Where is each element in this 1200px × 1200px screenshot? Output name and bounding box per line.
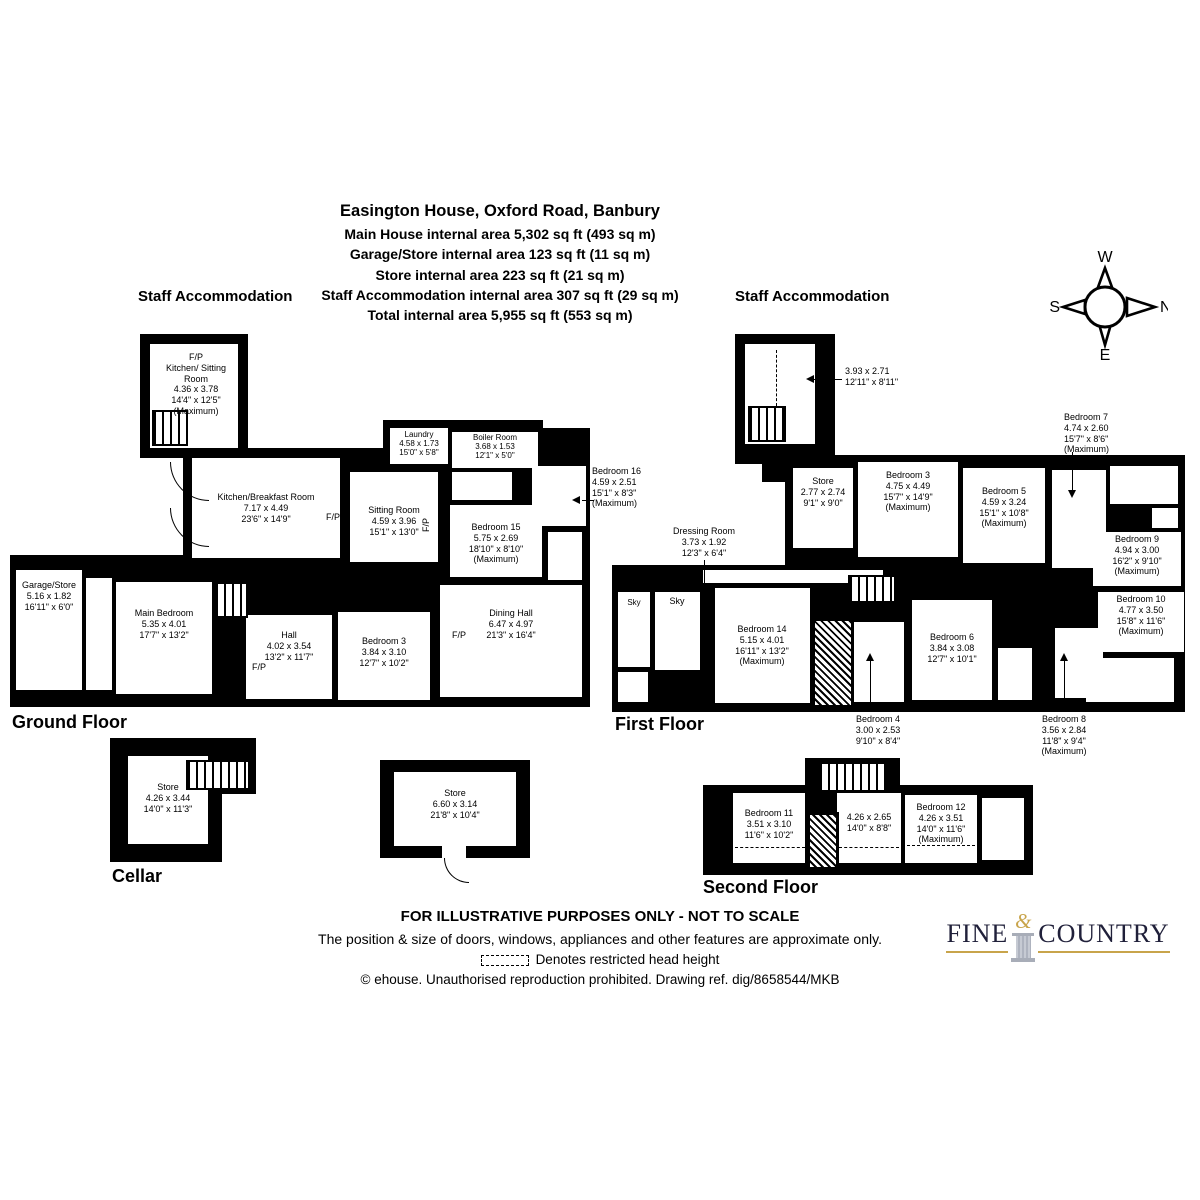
room-label-dressing-room: Dressing Room 3.73 x 1.92 12'3" x 6'4" — [673, 526, 735, 558]
room-label-bedroom-5: Bedroom 5 4.59 x 3.24 15'1" x 10'8" (Max… — [979, 486, 1028, 529]
compass-letter-s: S — [1049, 299, 1060, 316]
restricted-head-height-line — [735, 847, 805, 848]
room-label-laundry: Laundry 4.58 x 1.73 15'0" x 5'8" — [399, 430, 439, 458]
column-shaft-icon — [1016, 936, 1031, 958]
skylight-label: Sky — [627, 598, 640, 607]
arrow-head — [806, 375, 814, 383]
room-dining-hall — [440, 585, 582, 697]
footer-restricted-head-note: Denotes restricted head height — [150, 952, 1050, 967]
compass-letter-n: N — [1160, 299, 1168, 316]
skylight-label: Sky — [669, 596, 684, 607]
room-bathroom — [982, 798, 1024, 860]
door-swing — [170, 462, 209, 501]
arrow-line — [814, 379, 842, 380]
room-label-kitchen-sitting-room: F/P Kitchen/ Sitting Room 4.36 x 3.78 14… — [154, 352, 238, 417]
room-label-bedroom-4: Bedroom 4 3.00 x 2.53 9'10" x 8'4" — [856, 714, 901, 746]
logo-column: & — [1011, 911, 1035, 962]
arrow-head — [700, 592, 708, 600]
logo-ampersand: & — [1015, 911, 1031, 932]
room-bathroom — [1110, 466, 1178, 504]
logo-word-fine: FINE — [946, 921, 1008, 953]
compass-circle — [1085, 287, 1125, 327]
logo-word-country: COUNTRY — [1038, 921, 1169, 953]
arrow-head — [1068, 490, 1076, 498]
stairs-icon — [848, 575, 896, 603]
room-label-staff-right: 3.93 x 2.71 12'11" x 8'11" — [845, 366, 898, 388]
room-label-store-first: Store 2.77 x 2.74 9'1" x 9'0" — [801, 476, 846, 508]
arrow-head — [572, 496, 580, 504]
chimney-hatch — [807, 812, 839, 870]
area-line: Main House internal area 5,302 sq ft (49… — [250, 224, 750, 244]
arrow-line — [582, 500, 594, 501]
room-label-bedroom-12: Bedroom 12 4.26 x 3.51 14'0" x 11'6" (Ma… — [916, 802, 965, 845]
room-label-bedroom-16: Bedroom 16 4.59 x 2.51 15'1" x 8'3" (Max… — [592, 466, 641, 509]
section-title-staff-accommodation-right: Staff Accommodation — [735, 288, 895, 306]
area-line: Staff Accommodation internal area 307 sq… — [250, 285, 750, 305]
floor-title-first: First Floor — [615, 714, 704, 735]
stairs-icon — [818, 762, 886, 792]
column-base — [1011, 958, 1035, 962]
room-label-garage-store: Garage/Store 5.16 x 1.82 16'11" x 6'0" — [22, 580, 76, 612]
room-label-bedroom-6: Bedroom 6 3.84 x 3.08 12'7" x 10'1" — [927, 632, 976, 664]
floorplan-page: Easington House, Oxford Road, Banbury Ma… — [0, 0, 1200, 1200]
area-line: Store internal area 223 sq ft (21 sq m) — [250, 265, 750, 285]
room-label-bedroom-8: Bedroom 8 3.56 x 2.84 11'8" x 9'4" (Maxi… — [1042, 714, 1087, 757]
stairs-icon — [214, 582, 248, 618]
compass-rose: W N E S — [1048, 246, 1168, 366]
room-label-bedroom-7: Bedroom 7 4.74 x 2.60 15'7" x 8'6" (Maxi… — [1064, 412, 1109, 455]
room-label-cellar-store: Store 4.26 x 3.44 14'0" x 11'3" — [144, 782, 193, 814]
footer-copyright: © ehouse. Unauthorised reproduction proh… — [150, 972, 1050, 987]
floor-title-second: Second Floor — [703, 877, 818, 898]
room-label-bedroom-15: Bedroom 15 5.75 x 2.69 18'10" x 8'10" (M… — [469, 522, 523, 565]
room-label-hall: Hall 4.02 x 3.54 13'2" x 11'7" — [265, 630, 314, 662]
room-label-boiler: Boiler Room 3.68 x 1.53 12'1" x 5'0" — [473, 433, 517, 461]
area-line: Garage/Store internal area 123 sq ft (11… — [250, 244, 750, 264]
fireplace-label: F/P — [326, 512, 340, 522]
footer-disclaimer: FOR ILLUSTRATIVE PURPOSES ONLY - NOT TO … — [150, 908, 1050, 925]
room-label-landing-second: 4.26 x 2.65 14'0" x 8'8" — [847, 812, 892, 834]
room-label-kitchen-breakfast: Kitchen/Breakfast Room 7.17 x 4.49 23'6"… — [217, 492, 314, 524]
room-label-bedroom-3-first: Bedroom 3 4.75 x 4.49 15'7" x 14'9" (Max… — [883, 470, 932, 513]
room-bathroom — [1152, 508, 1178, 528]
room-bathroom — [1086, 658, 1174, 702]
stairs-icon — [186, 760, 250, 790]
door-swing — [444, 858, 469, 883]
arrow-line — [1072, 452, 1073, 492]
door-swing — [170, 508, 209, 547]
compass-letter-w: W — [1097, 249, 1113, 266]
compass-point-right — [1127, 298, 1155, 316]
restricted-head-height-symbol — [481, 955, 529, 966]
compass-point-left — [1063, 300, 1085, 314]
section-title-staff-accommodation-left: Staff Accommodation — [138, 288, 298, 306]
room-lobby — [86, 578, 112, 690]
fireplace-label: F/P — [421, 518, 431, 532]
room-label-main-bedroom: Main Bedroom 5.35 x 4.01 17'7" x 13'2" — [135, 608, 194, 640]
room-bathroom — [998, 648, 1032, 700]
arrow-head — [1060, 653, 1068, 661]
page-title: Easington House, Oxford Road, Banbury — [250, 202, 750, 221]
void-hatch — [812, 618, 854, 708]
floor-title-ground: Ground Floor — [12, 712, 127, 733]
arrow-head — [866, 653, 874, 661]
fine-and-country-logo: FINE & COUNTRY — [948, 921, 1168, 962]
footer-approximate-note: The position & size of doors, windows, a… — [150, 931, 1050, 947]
footer: FOR ILLUSTRATIVE PURPOSES ONLY - NOT TO … — [150, 908, 1050, 992]
restricted-head-height-line — [776, 350, 777, 406]
fireplace-label: F/P — [452, 630, 466, 640]
room-label-bedroom-3-ground: Bedroom 3 3.84 x 3.10 12'7" x 10'2" — [359, 636, 408, 668]
restricted-head-height-line — [907, 845, 975, 846]
room-label-sitting-room: Sitting Room 4.59 x 3.96 15'1" x 13'0" — [368, 505, 420, 537]
fireplace-label: F/P — [252, 662, 266, 672]
header: Easington House, Oxford Road, Banbury Ma… — [250, 202, 750, 325]
arrow-line — [1064, 660, 1065, 712]
area-line: Total internal area 5,955 sq ft (553 sq … — [250, 305, 750, 325]
restricted-head-height-line — [839, 847, 899, 848]
room-label-bedroom-14: Bedroom 14 5.15 x 4.01 16'11" x 13'2" (M… — [735, 624, 789, 667]
room-label-bedroom-9: Bedroom 9 4.94 x 3.00 16'2" x 9'10" (Max… — [1112, 534, 1161, 577]
room-label-bedroom-10: Bedroom 10 4.77 x 3.50 15'8" x 11'6" (Ma… — [1116, 594, 1165, 637]
room-bathroom — [548, 532, 582, 580]
stairs-icon — [748, 406, 786, 442]
floor-title-cellar: Cellar — [112, 866, 162, 887]
arrow-line — [704, 560, 705, 594]
room-bathroom — [452, 472, 512, 500]
room-bedroom-4 — [848, 622, 904, 702]
room-label-store-outbuilding: Store 6.60 x 3.14 21'8" x 10'4" — [430, 788, 479, 820]
arrow-line — [870, 660, 871, 710]
room-bathroom — [618, 672, 648, 702]
room-label-dining-hall: Dining Hall 6.47 x 4.97 21'3" x 16'4" — [486, 608, 535, 640]
compass-letter-e: E — [1100, 347, 1111, 364]
room-label-bedroom-11: Bedroom 11 3.51 x 3.10 11'6" x 10'2" — [745, 808, 794, 840]
